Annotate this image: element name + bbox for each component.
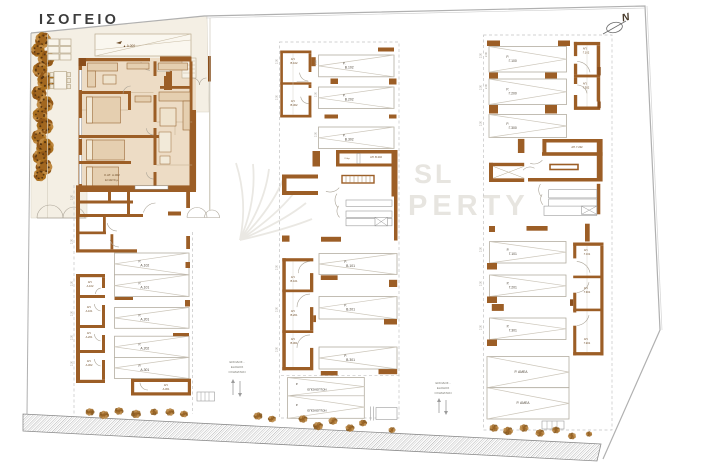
svg-text:P.: P. bbox=[343, 94, 346, 98]
svg-text:2.30: 2.30 bbox=[485, 84, 488, 89]
svg-text:2.30: 2.30 bbox=[71, 195, 74, 200]
svg-text:A.301: A.301 bbox=[163, 387, 170, 391]
svg-text:2.30: 2.30 bbox=[71, 335, 74, 340]
svg-text:ΕΙΣΟΔΟΣ -: ΕΙΣΟΔΟΣ - bbox=[230, 360, 245, 364]
svg-text:2.4τμ: 2.4τμ bbox=[344, 158, 350, 160]
svg-text:ΕΠΙΣΚΕΠΤΩΝ: ΕΠΙΣΚΕΠΤΩΝ bbox=[307, 388, 326, 392]
svg-text:P.: P. bbox=[507, 282, 510, 286]
svg-text:P.: P. bbox=[138, 314, 141, 318]
svg-text:P.: P. bbox=[344, 354, 347, 358]
svg-text:Γ.102: Γ.102 bbox=[583, 51, 590, 55]
svg-text:2.30: 2.30 bbox=[276, 59, 279, 64]
svg-text:ΑΠ.: ΑΠ. bbox=[291, 309, 296, 313]
svg-text:2.30: 2.30 bbox=[480, 85, 483, 90]
svg-text:P.: P. bbox=[506, 88, 509, 92]
svg-text:ΑΠ.: ΑΠ. bbox=[87, 331, 92, 335]
svg-text:P.: P. bbox=[343, 62, 346, 66]
svg-text:B.301: B.301 bbox=[290, 341, 298, 345]
svg-text:ΑΠ.: ΑΠ. bbox=[583, 82, 588, 86]
svg-text:2.30: 2.30 bbox=[480, 281, 483, 286]
svg-text:2.30: 2.30 bbox=[315, 132, 318, 137]
svg-text:A.101: A.101 bbox=[140, 285, 149, 289]
svg-text:2.30: 2.30 bbox=[276, 95, 279, 100]
svg-text:P.: P. bbox=[138, 260, 141, 264]
svg-text:P.: P. bbox=[296, 403, 299, 407]
svg-text:B.301: B.301 bbox=[346, 358, 355, 362]
svg-text:▲ A.000: ▲ A.000 bbox=[123, 44, 135, 48]
svg-text:ΑΠ.: ΑΠ. bbox=[291, 337, 296, 341]
svg-text:2.30: 2.30 bbox=[480, 325, 483, 330]
svg-text:Γ.201: Γ.201 bbox=[584, 341, 591, 345]
svg-text:Γ.301: Γ.301 bbox=[509, 329, 517, 333]
svg-text:ΑΠ. Γ.202: ΑΠ. Γ.202 bbox=[571, 145, 583, 149]
svg-text:2.30: 2.30 bbox=[315, 92, 318, 97]
svg-text:ΑΠ.: ΑΠ. bbox=[88, 280, 93, 284]
svg-text:ΟΧΗΜΑΤΩΝ: ΟΧΗΜΑΤΩΝ bbox=[435, 391, 452, 395]
svg-text:Γ.101: Γ.101 bbox=[584, 252, 591, 256]
svg-text:2.30: 2.30 bbox=[71, 311, 74, 316]
svg-text:Ε=102.5τ.μ.: Ε=102.5τ.μ. bbox=[105, 178, 119, 182]
svg-text:P. AMEA: P. AMEA bbox=[514, 370, 528, 374]
svg-text:ΟΧΗΜΑΤΩΝ: ΟΧΗΜΑΤΩΝ bbox=[229, 370, 246, 374]
svg-text:B.202: B.202 bbox=[345, 98, 354, 102]
svg-text:B.302: B.302 bbox=[290, 103, 298, 107]
svg-text:ΕΞΟΔΟΣ: ΕΞΟΔΟΣ bbox=[437, 386, 449, 390]
svg-text:P.: P. bbox=[344, 260, 347, 264]
svg-text:P.: P. bbox=[296, 382, 299, 386]
svg-text:A.101: A.101 bbox=[86, 309, 93, 313]
svg-text:Γ.100: Γ.100 bbox=[509, 59, 517, 63]
svg-text:P.: P. bbox=[507, 325, 510, 329]
svg-text:ΕΠΙΣΚΕΠΤΩΝ: ΕΠΙΣΚΕΠΤΩΝ bbox=[307, 409, 326, 413]
svg-text:ΑΠ.: ΑΠ. bbox=[87, 359, 92, 363]
svg-text:ΑΠ.: ΑΠ. bbox=[583, 47, 588, 51]
svg-text:ΕΞΟΔΟΣ: ΕΞΟΔΟΣ bbox=[231, 365, 243, 369]
svg-text:ΑΠ.: ΑΠ. bbox=[584, 248, 589, 252]
svg-text:2.30: 2.30 bbox=[485, 52, 488, 57]
svg-text:2.30: 2.30 bbox=[71, 361, 74, 366]
svg-text:B.101: B.101 bbox=[346, 264, 355, 268]
svg-text:A.201: A.201 bbox=[140, 318, 149, 322]
svg-text:P.: P. bbox=[138, 343, 141, 347]
svg-text:P.: P. bbox=[344, 304, 347, 308]
svg-text:P.: P. bbox=[138, 281, 141, 285]
svg-text:PERTY: PERTY bbox=[408, 190, 530, 222]
svg-text:ΕΙΣΟΔΟΣ -: ΕΙΣΟΔΟΣ - bbox=[436, 381, 451, 385]
svg-text:B.102: B.102 bbox=[345, 66, 354, 70]
svg-text:ΑΠ. B.202: ΑΠ. B.202 bbox=[370, 155, 382, 159]
svg-text:B.102: B.102 bbox=[290, 61, 298, 65]
svg-text:2.30: 2.30 bbox=[71, 281, 74, 286]
svg-text:P.: P. bbox=[506, 55, 509, 59]
svg-text:2.30: 2.30 bbox=[480, 247, 483, 252]
svg-text:A.102: A.102 bbox=[140, 264, 149, 268]
svg-text:A.301: A.301 bbox=[140, 368, 149, 372]
svg-text:B.201: B.201 bbox=[290, 313, 298, 317]
svg-text:2.30: 2.30 bbox=[480, 121, 483, 126]
svg-text:ΑΠ.: ΑΠ. bbox=[164, 383, 169, 387]
svg-text:SL: SL bbox=[414, 159, 455, 189]
svg-text:2.30: 2.30 bbox=[480, 53, 483, 58]
svg-text:2.30: 2.30 bbox=[276, 265, 279, 270]
svg-text:A.102: A.102 bbox=[87, 284, 94, 288]
svg-text:Γ.300: Γ.300 bbox=[509, 126, 517, 130]
svg-text:2.30: 2.30 bbox=[315, 60, 318, 65]
svg-text:B.201: B.201 bbox=[346, 308, 355, 312]
svg-text:Γ.200: Γ.200 bbox=[509, 92, 517, 96]
svg-text:B.101: B.101 bbox=[290, 279, 298, 283]
svg-text:Γ.301: Γ.301 bbox=[584, 290, 591, 294]
svg-text:2.30: 2.30 bbox=[276, 307, 279, 312]
svg-text:ΑΠ.: ΑΠ. bbox=[87, 305, 92, 309]
svg-text:P.: P. bbox=[507, 248, 510, 252]
svg-text:B.302: B.302 bbox=[345, 138, 354, 142]
svg-text:P.: P. bbox=[506, 122, 509, 126]
svg-text:A.202: A.202 bbox=[140, 347, 149, 351]
svg-text:P.: P. bbox=[343, 134, 346, 138]
svg-text:P. AMEA: P. AMEA bbox=[516, 401, 530, 405]
svg-text:2.30: 2.30 bbox=[276, 347, 279, 352]
svg-text:P.: P. bbox=[138, 364, 141, 368]
svg-text:2.30: 2.30 bbox=[71, 239, 74, 244]
svg-text:Κ.ΑΤ. A.002: Κ.ΑΤ. A.002 bbox=[104, 173, 120, 177]
svg-text:ΑΠ.: ΑΠ. bbox=[584, 337, 589, 341]
svg-text:A.302: A.302 bbox=[86, 363, 93, 367]
svg-text:Γ.101: Γ.101 bbox=[509, 252, 517, 256]
svg-text:A.201: A.201 bbox=[86, 335, 93, 339]
svg-text:Γ.201: Γ.201 bbox=[509, 286, 517, 290]
